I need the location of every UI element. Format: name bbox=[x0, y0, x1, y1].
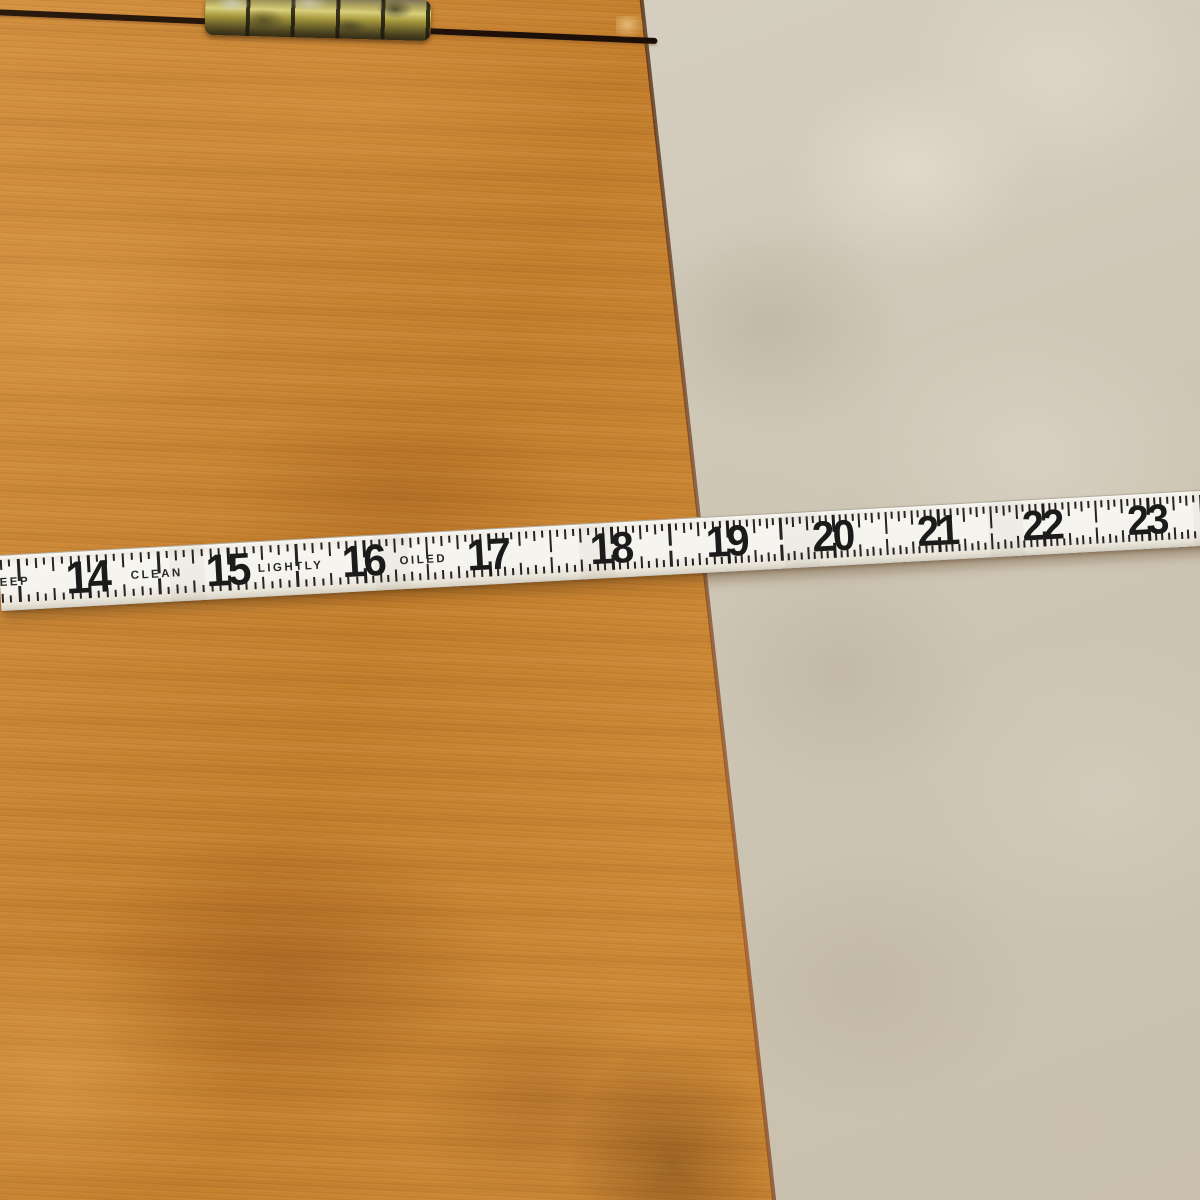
ruler-tick bbox=[684, 557, 686, 566]
ruler-tick bbox=[698, 553, 701, 565]
ruler-tick bbox=[1074, 502, 1076, 509]
ruler-tick bbox=[262, 577, 265, 589]
ruler-tick bbox=[573, 565, 575, 572]
ruler-tick bbox=[877, 512, 879, 519]
ruler-tick bbox=[653, 524, 656, 534]
ruler-tick bbox=[269, 545, 271, 552]
ruler-inch-number: 14 bbox=[65, 553, 111, 601]
ruler-tick bbox=[185, 586, 187, 593]
ruler-tick bbox=[997, 542, 999, 549]
ruler-tick bbox=[640, 556, 643, 568]
ruler-tick bbox=[183, 550, 185, 557]
ruler-tick bbox=[458, 566, 461, 578]
ruler-tick bbox=[525, 531, 527, 538]
ruler-tick bbox=[1185, 496, 1188, 506]
ruler-tick bbox=[1179, 496, 1181, 503]
ruler-tick bbox=[655, 558, 657, 567]
ruler-tick bbox=[1008, 505, 1010, 512]
ruler-tick bbox=[1102, 536, 1104, 543]
ruler-tick bbox=[113, 554, 115, 561]
ruler-tick bbox=[1067, 502, 1070, 516]
ruler-tick bbox=[969, 507, 971, 514]
ruler-tick bbox=[1015, 505, 1018, 519]
ruler-tick bbox=[906, 547, 908, 554]
ruler-tick bbox=[330, 573, 333, 585]
ruler-inch-number: 22 bbox=[1021, 503, 1064, 548]
ruler-word-oiled: OILED bbox=[399, 553, 447, 568]
ruler-tick bbox=[682, 523, 685, 533]
ruler-inch-number: 20 bbox=[811, 514, 855, 559]
ruler-tick bbox=[43, 558, 45, 565]
ruler-tick bbox=[53, 588, 56, 600]
ruler-tick bbox=[193, 580, 196, 592]
ruler-tick bbox=[787, 553, 789, 560]
ruler-tick bbox=[873, 547, 875, 556]
ruler-tick bbox=[754, 550, 757, 562]
ruler-tick bbox=[518, 532, 521, 546]
ruler-tick bbox=[277, 545, 280, 555]
ruler-tick bbox=[519, 563, 522, 575]
ruler-tick bbox=[976, 507, 979, 517]
ruler-tick bbox=[632, 526, 634, 533]
ruler-tick bbox=[311, 543, 314, 553]
ruler-tick bbox=[807, 547, 810, 559]
ruler-tick bbox=[646, 525, 648, 532]
ruler-tick bbox=[1109, 534, 1111, 543]
ruler-inch-number: 17 bbox=[466, 532, 511, 579]
ruler-tick bbox=[989, 506, 993, 528]
ruler-tick bbox=[1100, 500, 1102, 507]
ruler-tick bbox=[661, 524, 663, 531]
ruler-tick bbox=[1174, 527, 1177, 539]
ruler-tick bbox=[432, 536, 434, 543]
brass-hinge bbox=[204, 0, 431, 41]
ruler-tick bbox=[634, 562, 636, 569]
ruler-tick bbox=[550, 557, 553, 573]
ruler-inch-number: 15 bbox=[205, 546, 251, 593]
ruler-tick bbox=[139, 552, 142, 562]
ruler-tick bbox=[669, 551, 672, 567]
ruler-tick bbox=[785, 517, 787, 524]
ruler-tick bbox=[1081, 501, 1084, 511]
ruler-tick bbox=[386, 539, 388, 546]
ruler-tick bbox=[260, 546, 263, 560]
ruler-tick bbox=[871, 513, 874, 523]
ruler-tick bbox=[426, 564, 429, 580]
ruler-tick bbox=[774, 554, 776, 561]
ruler-tick bbox=[18, 586, 21, 602]
ruler-tick bbox=[150, 588, 152, 595]
ruler-tick bbox=[1187, 530, 1189, 539]
ruler-tick bbox=[62, 593, 64, 600]
ruler-tick bbox=[510, 532, 512, 539]
ruler-tick bbox=[130, 553, 132, 560]
ruler-tick bbox=[761, 555, 763, 562]
photo-tabletop-with-ruler: EEP CLEAN LIGHTLY OILED 1415161718192021… bbox=[0, 0, 1200, 1200]
ruler-tick bbox=[1095, 528, 1098, 544]
ruler-tick bbox=[288, 580, 290, 587]
ruler-tick bbox=[0, 560, 2, 570]
ruler-inch-number: 21 bbox=[916, 509, 959, 554]
ruler-tick bbox=[450, 572, 452, 579]
ruler-tick bbox=[533, 531, 536, 541]
ruler-tick bbox=[971, 543, 973, 550]
ruler-tick bbox=[571, 529, 573, 536]
ruler-tick bbox=[1076, 538, 1078, 545]
ruler-tick bbox=[990, 533, 993, 549]
ruler-tick bbox=[25, 558, 27, 565]
ruler-tick bbox=[639, 525, 642, 539]
ruler-tick bbox=[912, 542, 915, 554]
ruler-tick bbox=[879, 548, 881, 555]
ruler-word-clean: CLEAN bbox=[130, 567, 183, 582]
ruler-tick bbox=[892, 548, 894, 555]
ruler-tick bbox=[279, 579, 281, 588]
ruler-tick bbox=[10, 595, 12, 602]
ruler-tick bbox=[995, 506, 997, 513]
ruler-inch-number: 19 bbox=[705, 520, 749, 566]
ruler-tick bbox=[202, 585, 204, 592]
ruler-tick bbox=[442, 570, 444, 579]
ruler-tick bbox=[800, 553, 802, 560]
ruler-tick bbox=[141, 586, 143, 595]
ruler-tick bbox=[772, 518, 774, 525]
ruler-tick bbox=[984, 543, 986, 550]
ruler-tick bbox=[668, 524, 672, 546]
ruler-tick bbox=[858, 513, 861, 527]
ruler-tick bbox=[543, 567, 545, 574]
ruler-tick bbox=[132, 589, 134, 596]
ruler-tick bbox=[1017, 536, 1020, 548]
ruler-tick bbox=[27, 594, 29, 601]
ruler-tick bbox=[648, 561, 650, 568]
ruler-tick bbox=[52, 557, 55, 571]
ruler-tick bbox=[1181, 532, 1183, 539]
ruler-tick bbox=[456, 535, 459, 549]
ruler-tick bbox=[296, 571, 299, 587]
ruler-tick bbox=[897, 511, 900, 521]
ruler-tick bbox=[1094, 501, 1098, 523]
ruler-tick bbox=[122, 553, 125, 567]
ruler-tick bbox=[884, 512, 888, 534]
ruler-tick bbox=[798, 517, 800, 524]
ruler-tick bbox=[1089, 537, 1091, 544]
ruler-tick bbox=[752, 519, 755, 533]
ruler-tick bbox=[60, 557, 62, 564]
ruler-tick bbox=[792, 517, 795, 527]
ruler-tick bbox=[866, 549, 868, 556]
ruler-tick bbox=[176, 584, 178, 593]
ruler-tick bbox=[440, 536, 443, 546]
ruler-tick bbox=[556, 530, 558, 537]
ruler-tick bbox=[401, 538, 403, 545]
ruler-tick bbox=[566, 563, 568, 572]
ruler-tick bbox=[395, 570, 398, 582]
ruler-tick bbox=[1194, 531, 1196, 538]
ruler-tick bbox=[403, 574, 405, 581]
ruler-tick bbox=[1172, 496, 1175, 510]
ruler-tick bbox=[1010, 541, 1012, 548]
ruler-tick bbox=[864, 513, 866, 520]
ruler-tick bbox=[167, 587, 169, 594]
ruler-tick bbox=[419, 573, 421, 580]
ruler-tick bbox=[417, 537, 419, 544]
ruler-tick bbox=[339, 578, 341, 585]
ruler-tick bbox=[982, 507, 984, 514]
ruler-tick bbox=[393, 539, 396, 553]
ruler-tick bbox=[859, 544, 862, 556]
ruler-inch-number: 16 bbox=[341, 539, 386, 586]
ruler-tick bbox=[388, 575, 390, 582]
ruler-tick bbox=[794, 551, 796, 560]
ruler-tick bbox=[123, 584, 126, 596]
ruler-tick bbox=[904, 511, 906, 518]
ruler-tick bbox=[891, 512, 893, 519]
ruler-tick bbox=[541, 531, 543, 538]
ruler-tick bbox=[148, 552, 150, 559]
ruler-tick bbox=[1087, 501, 1089, 508]
ruler-tick bbox=[286, 544, 288, 551]
ruler-tick bbox=[305, 579, 307, 586]
ruler-tick bbox=[158, 578, 161, 594]
ruler-tick bbox=[759, 519, 761, 526]
ruler-tick bbox=[677, 559, 679, 566]
ruler-tick bbox=[1002, 506, 1005, 516]
seam-end-notch bbox=[616, 16, 644, 38]
ruler-tick bbox=[1082, 535, 1084, 544]
ruler-tick bbox=[779, 518, 783, 540]
ruler-tick bbox=[200, 549, 202, 556]
ruler-tick bbox=[579, 528, 582, 542]
ruler-tick bbox=[1120, 499, 1123, 513]
ruler-tick bbox=[328, 542, 331, 556]
ruler-tick bbox=[662, 560, 664, 567]
ruler-tick bbox=[165, 551, 167, 558]
ruler-tick bbox=[697, 522, 700, 536]
ruler-tick bbox=[548, 530, 552, 552]
ruler-tick bbox=[1113, 500, 1115, 507]
ruler-tick bbox=[448, 536, 450, 543]
ruler-tick bbox=[1069, 533, 1072, 545]
ruler-tick bbox=[675, 523, 677, 530]
ruler-tick bbox=[1107, 500, 1110, 510]
ruler-tick bbox=[191, 549, 194, 563]
ruler-tick bbox=[899, 545, 901, 554]
ruler-tick bbox=[558, 566, 560, 573]
ruler-tick bbox=[271, 581, 273, 588]
ruler-tick bbox=[45, 593, 47, 600]
ruler-tick bbox=[512, 568, 514, 575]
ruler-inch-number: 23 bbox=[1126, 498, 1168, 542]
ruler-tick bbox=[34, 558, 37, 568]
ruler-tick bbox=[254, 582, 256, 589]
ruler-tick bbox=[1192, 495, 1194, 502]
ruler-tick bbox=[174, 550, 177, 560]
ruler-tick bbox=[411, 572, 413, 581]
ruler-tick bbox=[1115, 536, 1117, 543]
ruler-tick bbox=[691, 558, 693, 565]
ruler-word-lightly: LIGHTLY bbox=[257, 559, 323, 575]
ruler-tick bbox=[535, 565, 537, 574]
ruler-tick bbox=[252, 546, 254, 553]
ruler-tick bbox=[322, 578, 324, 585]
ruler-tick bbox=[434, 572, 436, 579]
ruler-tick bbox=[1122, 530, 1125, 542]
ruler-tick bbox=[337, 542, 339, 549]
ruler-tick bbox=[885, 539, 888, 555]
ruler-tick bbox=[767, 552, 769, 561]
ruler-tick bbox=[409, 538, 412, 548]
ruler-tick bbox=[36, 592, 38, 601]
ruler-tick bbox=[313, 577, 315, 586]
ruler-tick bbox=[964, 539, 967, 551]
ruler-tick bbox=[1, 594, 3, 603]
ruler-tick bbox=[963, 508, 966, 522]
ruler-tick bbox=[115, 590, 117, 597]
ruler-tick bbox=[8, 559, 10, 566]
ruler-tick bbox=[303, 543, 305, 550]
ruler-tick bbox=[1004, 540, 1006, 549]
ruler-word-keep: EEP bbox=[0, 575, 31, 589]
ruler-tick bbox=[805, 516, 808, 530]
ruler-tick bbox=[689, 523, 691, 530]
ruler-tick bbox=[780, 545, 783, 561]
ruler-tick bbox=[910, 511, 913, 525]
ruler-inch-number: 18 bbox=[589, 526, 633, 572]
ruler-tick bbox=[978, 541, 980, 550]
ruler-tick bbox=[527, 567, 529, 574]
ruler-tick bbox=[765, 518, 768, 528]
ruler-tick bbox=[320, 543, 322, 550]
ruler-tick bbox=[581, 559, 584, 571]
ruler-tick bbox=[564, 529, 567, 539]
